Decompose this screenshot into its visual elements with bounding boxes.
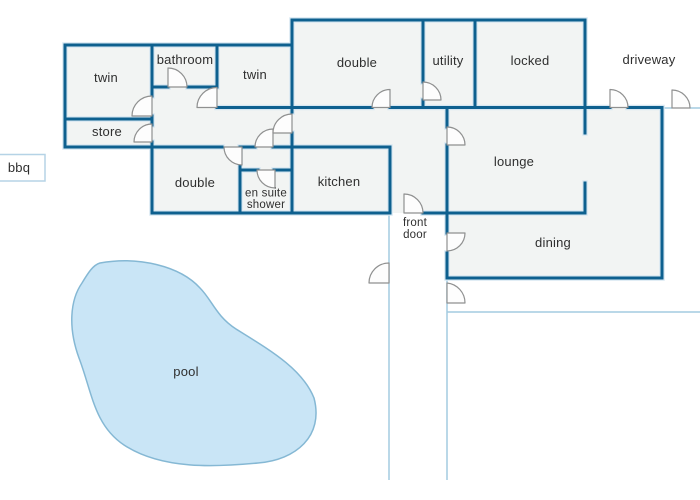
label-ensuite-line2: shower xyxy=(247,199,285,211)
label-store: store xyxy=(92,124,122,139)
label-driveway: driveway xyxy=(623,52,676,67)
label-front-door-line2: door xyxy=(403,229,427,241)
label-ensuite-line1: en suite xyxy=(245,188,287,200)
label-double-back: double xyxy=(175,175,215,190)
label-front-door-line1: front xyxy=(403,217,428,229)
label-double-front: double xyxy=(337,55,377,70)
label-twin-front: twin xyxy=(94,70,118,85)
label-locked: locked xyxy=(511,53,550,68)
label-twin-mid: twin xyxy=(243,67,267,82)
garden-gate-right-arc xyxy=(447,283,465,303)
label-pool: pool xyxy=(173,364,198,379)
label-bbq: bbq xyxy=(8,160,30,175)
label-dining: dining xyxy=(535,235,571,250)
label-lounge: lounge xyxy=(494,154,534,169)
label-kitchen: kitchen xyxy=(318,174,361,189)
label-utility: utility xyxy=(432,53,463,68)
room-area-corridor xyxy=(292,108,447,147)
driveway-door-arc xyxy=(610,90,628,108)
room-area-lounge-dining xyxy=(447,108,662,278)
floor-plan-canvas: twin bathroom twin store double utility … xyxy=(0,0,700,500)
garden-gate-left-arc xyxy=(369,263,389,283)
driveway-gate-arc xyxy=(672,90,690,108)
label-bathroom: bathroom xyxy=(157,52,214,67)
